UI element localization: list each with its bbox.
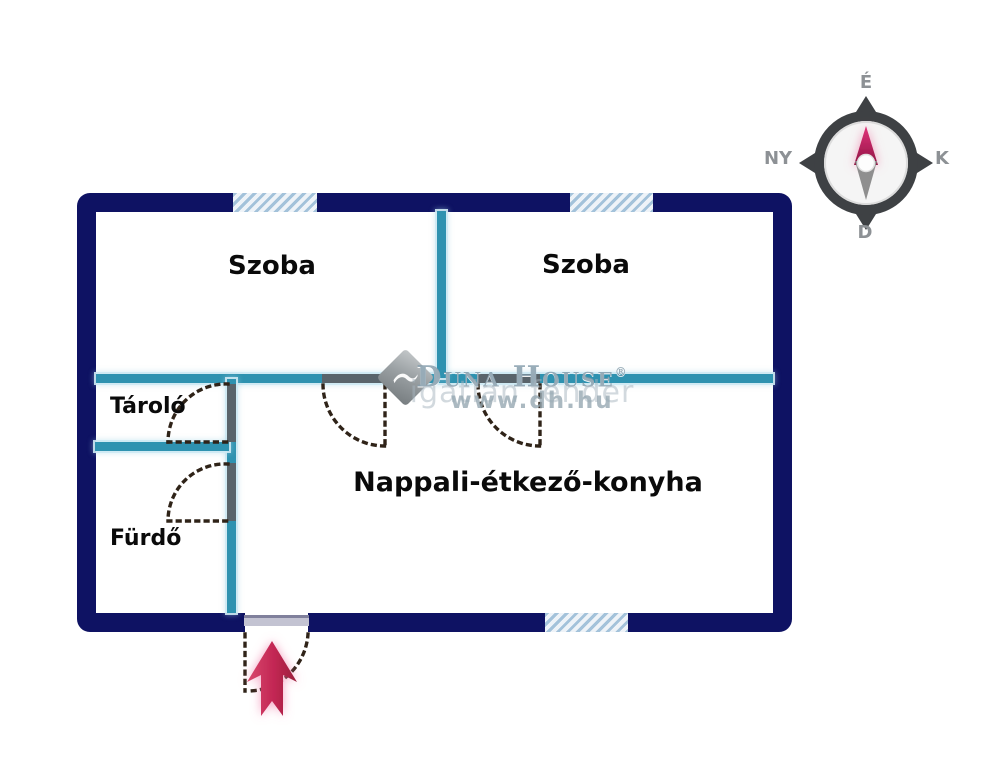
window-hatch-bottom [545, 613, 628, 632]
wall-tarolo-furdo [95, 442, 229, 451]
entrance-threshold [244, 615, 309, 626]
compass-label-south: D [845, 222, 885, 243]
compass-rose-icon [799, 96, 933, 230]
floor-plan: Szoba Szoba Tároló Fürdő Nappali-étkező-… [0, 0, 995, 768]
room-label-tarolo: Tároló [110, 394, 220, 419]
window-hatch-top-left [233, 193, 317, 212]
wall-between-szoba-rooms [437, 211, 446, 378]
door-arc-entrance [245, 634, 308, 691]
room-label-szoba-right: Szoba [511, 250, 661, 280]
entrance-arrow-icon [247, 641, 297, 716]
compass-needle-icon [854, 126, 878, 200]
room-label-nappali: Nappali-étkező-konyha [328, 467, 728, 498]
room-label-furdo: Fürdő [110, 526, 220, 551]
door-opening-furdo [227, 463, 236, 521]
door-opening-tarolo [227, 384, 236, 442]
compass-label-west: NY [758, 148, 798, 169]
compass-label-north: É [846, 72, 886, 93]
wall-horizontal-main [96, 374, 773, 383]
door-opening-nappali-left [322, 374, 385, 383]
door-opening-nappali-right [477, 374, 540, 383]
room-label-szoba-left: Szoba [197, 251, 347, 281]
window-hatch-top-right [570, 193, 653, 212]
compass-label-east: K [922, 148, 962, 169]
